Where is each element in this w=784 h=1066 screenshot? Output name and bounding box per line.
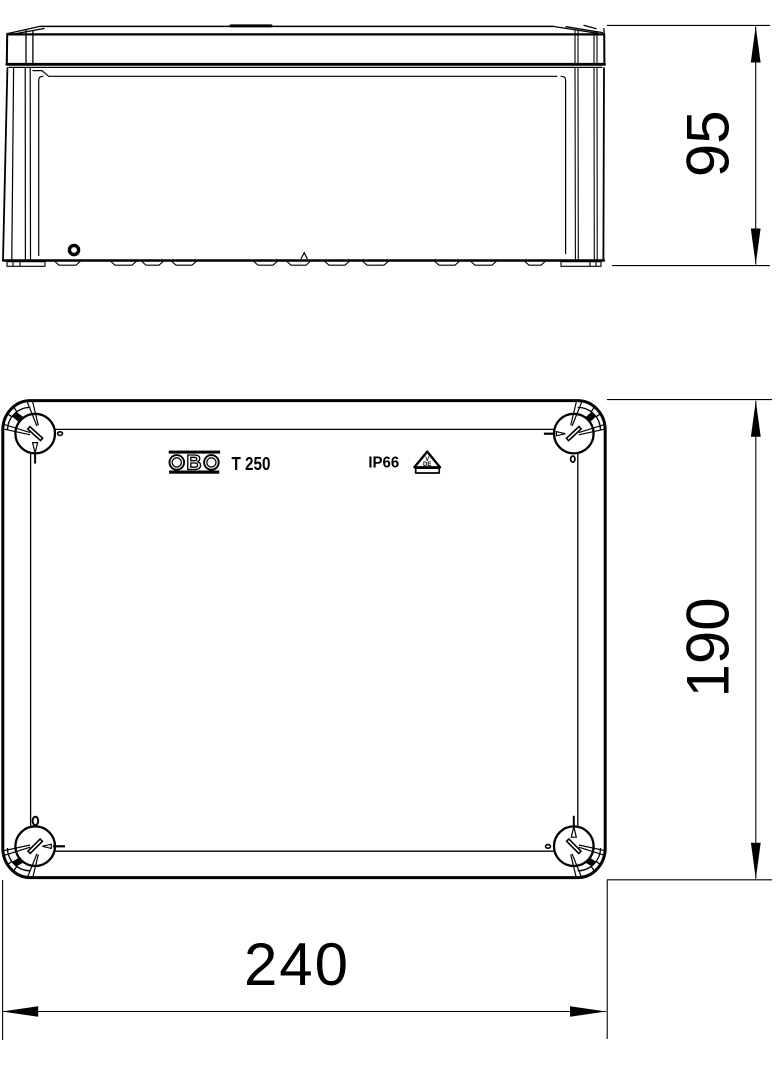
svg-text:IP66: IP66 <box>368 455 399 472</box>
svg-text:240: 240 <box>244 931 350 998</box>
svg-text:DE: DE <box>423 462 431 468</box>
svg-text:95: 95 <box>674 110 741 177</box>
svg-text:190: 190 <box>675 597 742 697</box>
svg-text:B: B <box>186 452 201 475</box>
svg-text:T 250: T 250 <box>232 454 271 474</box>
